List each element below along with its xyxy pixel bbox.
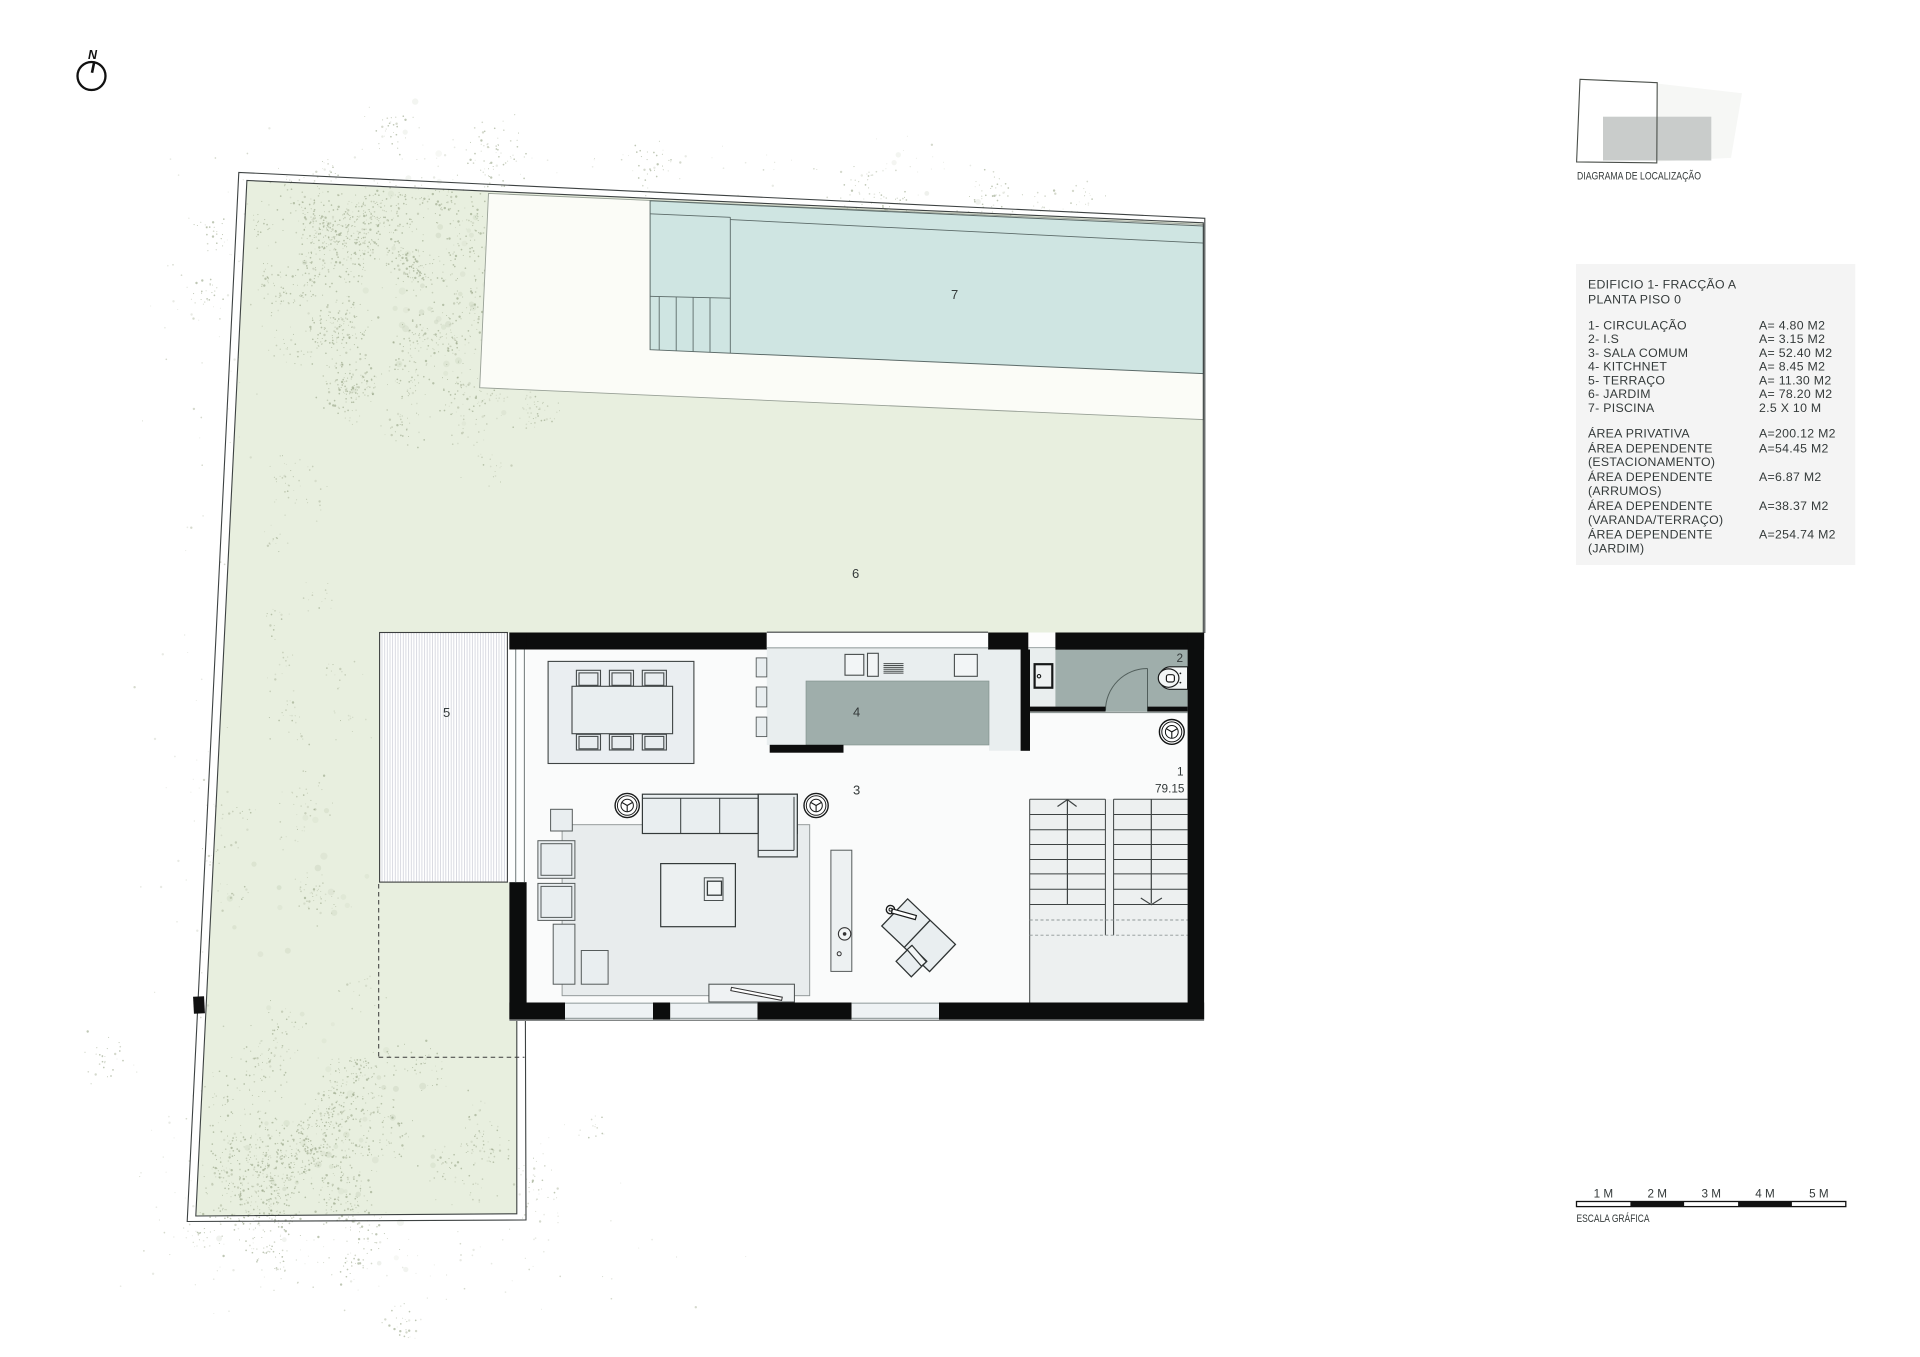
svg-text:5: 5 <box>443 705 450 720</box>
svg-text:2 M: 2 M <box>1648 1188 1667 1201</box>
svg-text:3 M: 3 M <box>1701 1188 1720 1201</box>
svg-text:5 M: 5 M <box>1809 1188 1828 1201</box>
svg-text:ÁREA DEPENDENTE: ÁREA DEPENDENTE <box>1588 469 1713 484</box>
svg-text:ESCALA GRÁFICA: ESCALA GRÁFICA <box>1577 1212 1651 1225</box>
svg-text:A= 8.45 M2: A= 8.45 M2 <box>1759 360 1825 374</box>
svg-text:EDIFICIO 1- FRACÇÃO A: EDIFICIO 1- FRACÇÃO A <box>1588 278 1737 292</box>
svg-text:79.15: 79.15 <box>1155 782 1185 796</box>
svg-text:A=38.37 M2: A=38.37 M2 <box>1759 499 1829 513</box>
svg-text:2- I.S: 2- I.S <box>1588 332 1619 346</box>
svg-text:6- JARDIM: 6- JARDIM <box>1588 387 1651 401</box>
svg-text:ÁREA DEPENDENTE: ÁREA DEPENDENTE <box>1588 440 1713 455</box>
svg-text:A= 52.40 M2: A= 52.40 M2 <box>1759 346 1832 360</box>
svg-text:ÁREA DEPENDENTE: ÁREA DEPENDENTE <box>1588 498 1713 513</box>
svg-text:3- SALA COMUM: 3- SALA COMUM <box>1588 346 1688 360</box>
svg-text:PLANTA PISO 0: PLANTA PISO 0 <box>1588 292 1681 306</box>
svg-text:A= 11.30 M2: A= 11.30 M2 <box>1759 373 1831 387</box>
svg-text:2: 2 <box>1177 651 1184 665</box>
svg-text:4: 4 <box>853 705 860 720</box>
svg-text:ÁREA DEPENDENTE: ÁREA DEPENDENTE <box>1588 526 1713 541</box>
svg-text:A=200.12 M2: A=200.12 M2 <box>1759 427 1836 441</box>
svg-text:ÁREA PRIVATIVA: ÁREA PRIVATIVA <box>1588 426 1690 441</box>
svg-text:1- CIRCULAÇÃO: 1- CIRCULAÇÃO <box>1588 318 1687 332</box>
svg-text:A=254.74 M2: A=254.74 M2 <box>1759 527 1836 541</box>
svg-text:(JARDIM): (JARDIM) <box>1588 541 1644 555</box>
svg-text:A=6.87 M2: A=6.87 M2 <box>1759 470 1822 484</box>
svg-text:DIAGRAMA DE LOCALIZAÇÃO: DIAGRAMA DE LOCALIZAÇÃO <box>1577 170 1701 183</box>
svg-text:A= 78.20 M2: A= 78.20 M2 <box>1759 387 1832 401</box>
svg-text:A= 3.15 M2: A= 3.15 M2 <box>1759 332 1825 346</box>
svg-text:7: 7 <box>951 287 958 302</box>
svg-text:4 M: 4 M <box>1755 1188 1774 1201</box>
svg-text:7- PISCINA: 7- PISCINA <box>1588 401 1655 415</box>
svg-text:A=54.45 M2: A=54.45 M2 <box>1759 441 1829 455</box>
svg-text:1 M: 1 M <box>1594 1188 1613 1201</box>
svg-text:(ARRUMOS): (ARRUMOS) <box>1588 484 1662 498</box>
svg-text:3: 3 <box>853 783 860 798</box>
svg-text:N: N <box>88 48 98 62</box>
svg-text:(VARANDA/TERRAÇO): (VARANDA/TERRAÇO) <box>1588 513 1723 527</box>
svg-text:(ESTACIONAMENTO): (ESTACIONAMENTO) <box>1588 455 1715 469</box>
svg-text:4- KITCHNET: 4- KITCHNET <box>1588 360 1667 374</box>
svg-text:6: 6 <box>852 566 859 581</box>
svg-text:5- TERRAÇO: 5- TERRAÇO <box>1588 373 1665 387</box>
svg-text:2.5 X 10 M: 2.5 X 10 M <box>1759 401 1821 415</box>
svg-text:A= 4.80 M2: A= 4.80 M2 <box>1759 318 1825 332</box>
svg-text:1: 1 <box>1177 765 1184 779</box>
